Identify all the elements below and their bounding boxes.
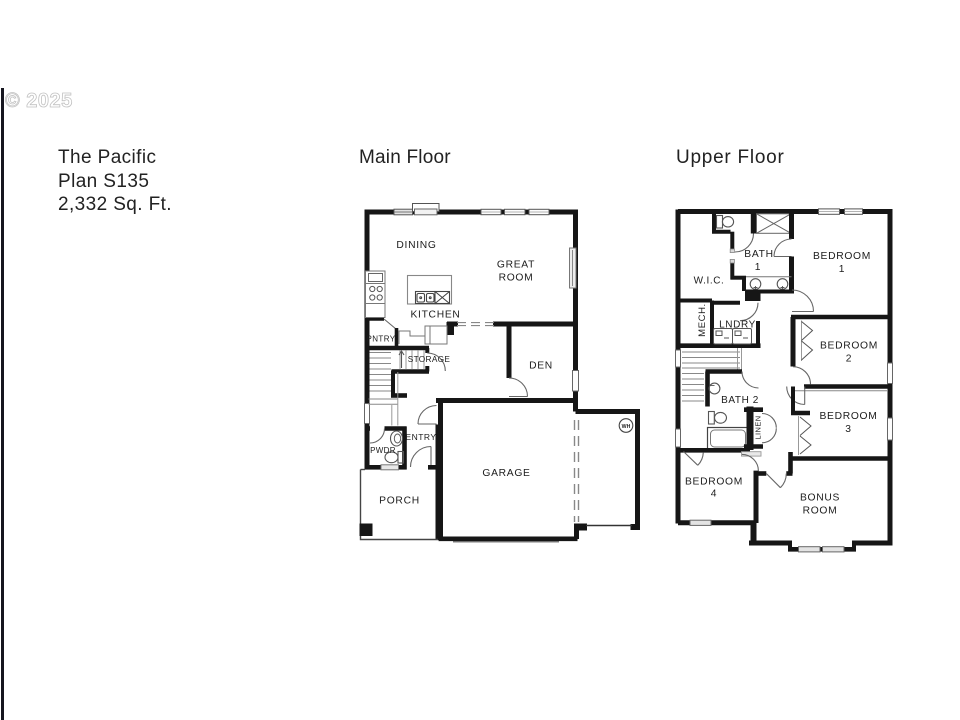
svg-text:PWDR: PWDR: [370, 446, 396, 455]
svg-text:LINEN: LINEN: [754, 415, 763, 439]
svg-text:4: 4: [711, 489, 717, 500]
svg-text:PORCH: PORCH: [379, 496, 420, 507]
svg-text:STORAGE: STORAGE: [408, 354, 451, 364]
svg-text:ROOM: ROOM: [803, 506, 838, 517]
svg-text:3: 3: [845, 424, 851, 435]
svg-text:KITCHEN: KITCHEN: [410, 310, 460, 321]
svg-text:BEDROOM: BEDROOM: [819, 411, 877, 422]
svg-text:1: 1: [839, 264, 845, 275]
svg-text:1: 1: [755, 262, 761, 273]
svg-text:BEDROOM: BEDROOM: [813, 251, 871, 262]
svg-text:BEDROOM: BEDROOM: [685, 477, 743, 488]
svg-text:2: 2: [846, 354, 852, 365]
svg-text:DINING: DINING: [396, 240, 436, 251]
svg-text:MECH.: MECH.: [697, 303, 708, 337]
svg-text:W.I.C.: W.I.C.: [694, 276, 725, 287]
svg-text:BEDROOM: BEDROOM: [820, 341, 878, 352]
svg-text:WH: WH: [622, 424, 631, 430]
svg-text:BONUS: BONUS: [800, 493, 840, 504]
svg-text:ENTRY: ENTRY: [405, 432, 436, 442]
svg-text:BATH: BATH: [744, 249, 774, 260]
svg-text:GARAGE: GARAGE: [482, 468, 530, 479]
svg-text:PNTRY: PNTRY: [367, 335, 396, 344]
svg-text:DEN: DEN: [529, 361, 553, 372]
svg-text:BATH 2: BATH 2: [721, 395, 759, 406]
svg-text:ROOM: ROOM: [499, 273, 534, 284]
svg-text:GREAT: GREAT: [497, 260, 535, 271]
svg-text:LNDRY: LNDRY: [719, 320, 756, 331]
